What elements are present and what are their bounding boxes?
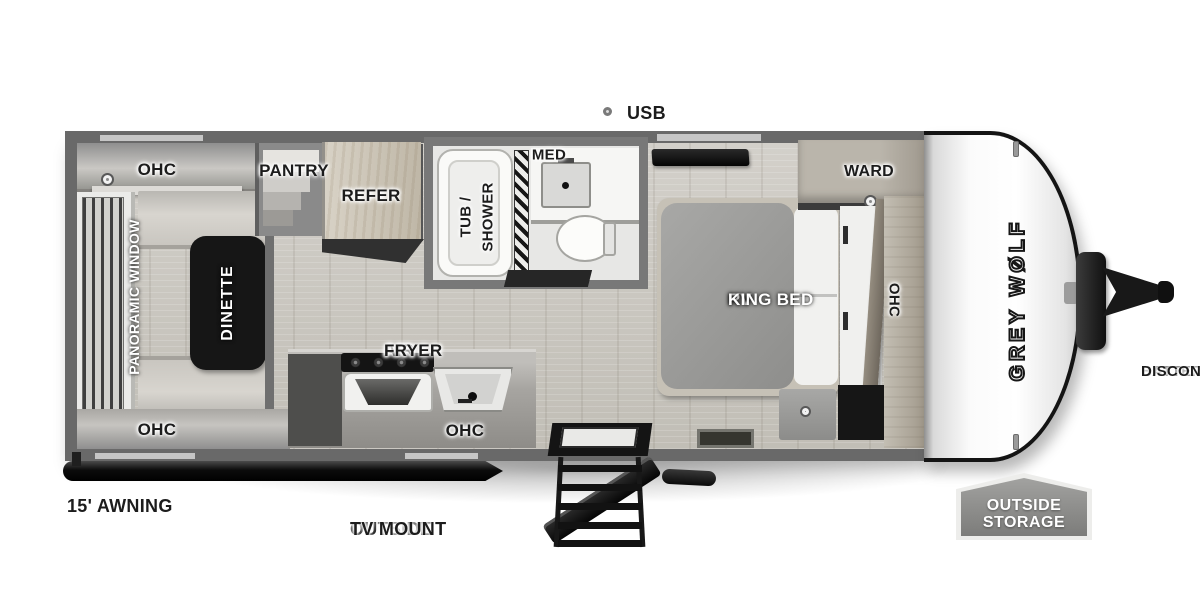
outside-storage-label-line2: STORAGE [983,514,1065,531]
rv-floorplan-diagram: GREY WØLF OUTSIDE STORAGE USB OHC PANTRY… [0,0,1200,600]
ohc-label-rear-top: OHC [138,160,177,180]
a-frame-tongue [1102,267,1166,317]
wardrobe-label: WARD [844,163,894,181]
bathroom-door [504,270,592,287]
shower-glass-divider [514,150,529,277]
step-rung [558,522,642,529]
grab-handle [662,469,717,487]
light-knob-icon [802,408,809,415]
usb-port-icon [603,107,612,116]
refer-label: REFER [341,186,400,206]
kitchen-faucet-handle [458,399,472,403]
step-rung [558,465,642,472]
wardrobe-handle [843,312,848,330]
king-bed-label-line2: KING BED [728,291,814,309]
outside-tv-mount-label-line2: TV MOUNT [350,520,446,539]
nightstand [779,389,836,440]
wardrobe-handle [843,226,848,244]
step-rung [558,540,642,547]
bedroom-cabinet [838,385,884,440]
entry-steps [550,455,650,550]
bottom-wall-strip [95,453,195,459]
drain-icon [562,182,569,189]
light-knob-icon [866,197,875,206]
dinette-label: DINETTE [219,265,237,340]
pantry-shelf [263,192,301,210]
bedroom-tv [651,149,749,166]
med-cabinet-label: MED [532,147,566,164]
hitch-coupler-icon [1158,281,1174,303]
awning-bracket [72,452,81,466]
light-knob-icon [103,175,112,184]
air-fryer-label-line2: FRYER [384,342,443,360]
cap-latch [1013,141,1019,157]
front-cap [924,131,1082,462]
top-wall-window-strip [100,135,203,141]
kitchen-base-cabinet [288,354,342,446]
pantry-label: PANTRY [259,161,329,181]
step-rung [558,503,642,510]
bottom-wall-strip [405,453,478,459]
cap-latch [1013,434,1019,450]
panoramic-window-label: PANORAMIC WINDOW [126,219,142,374]
dinette-partition-wall [265,230,274,416]
outside-storage-label-line1: OUTSIDE [987,497,1062,514]
ohc-label-kitchen: OHC [446,421,485,441]
overhead-cabinet-rear-bottom [77,409,290,449]
entry-landing [560,427,639,448]
ohc-label-rear-bottom: OHC [138,420,177,440]
pantry-shelf [263,210,293,226]
awning-roller-tube [63,461,503,481]
tub-shower-label-line1: TUB / [458,197,475,238]
brand-logo: GREY WØLF [1006,219,1030,382]
window-blinds [82,197,124,415]
step-rung [558,484,642,491]
toilet-tank [603,222,616,256]
ohc-label-bedroom: OHC [886,283,903,317]
awning-label: 15' AWNING [67,496,173,517]
top-wall-window-strip [657,134,761,141]
battery-disconnect-label-line2: DISCONNECT [1141,364,1200,380]
wall-inset-shelf [697,429,754,448]
wardrobe-side-panel [884,196,925,448]
tub-shower-label-line2: SHOWER [480,182,497,251]
battery-disconnect-box [1076,252,1106,350]
usb-label: USB [627,103,666,124]
